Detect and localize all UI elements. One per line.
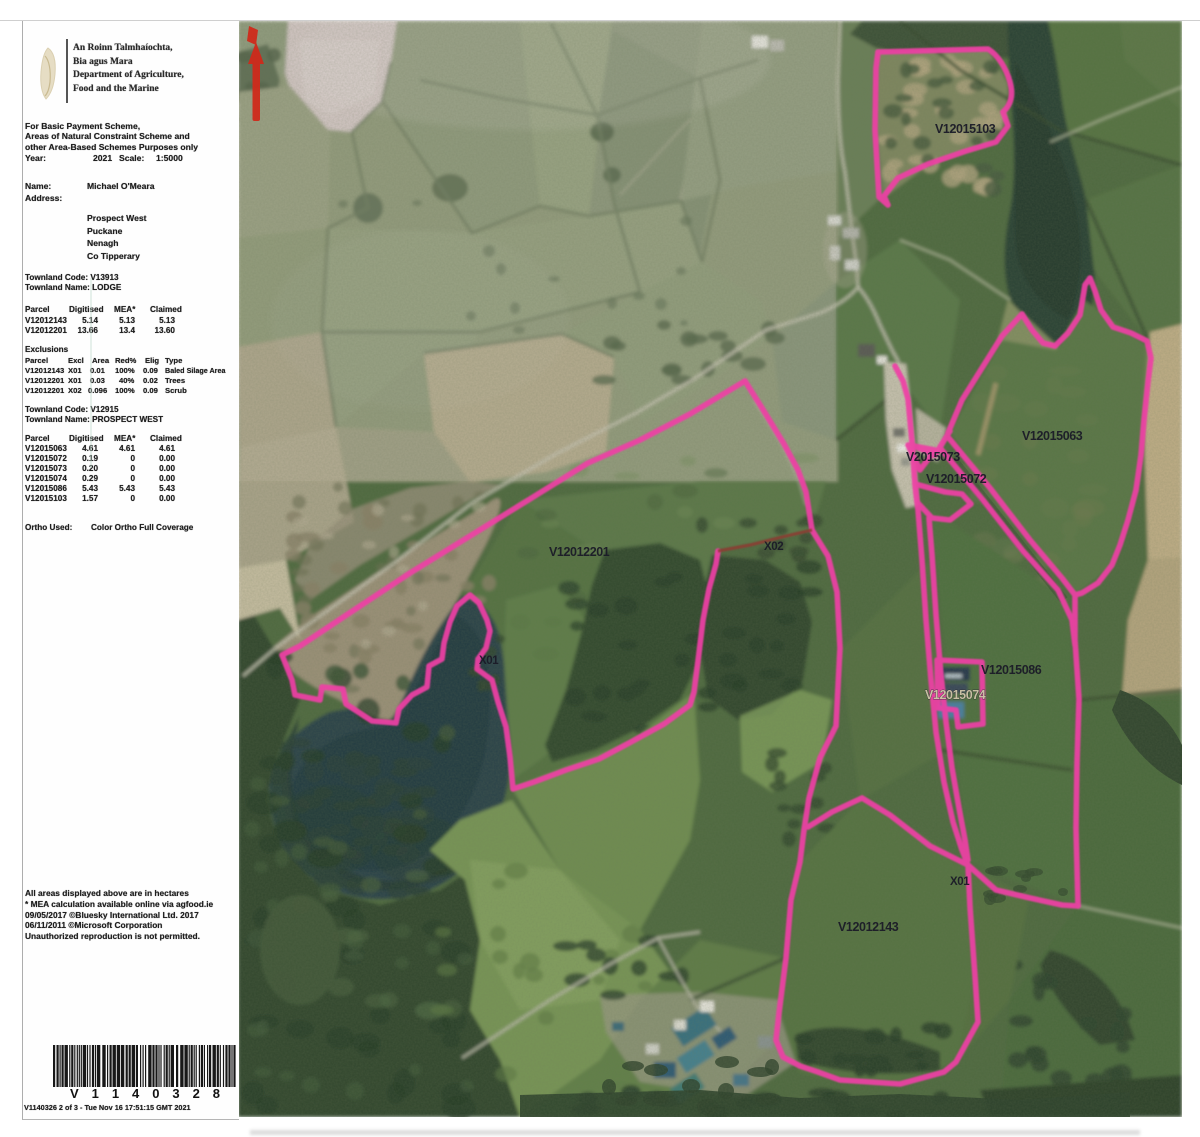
svg-text:V12015063: V12015063 — [1022, 429, 1083, 443]
svg-text:V12015072: V12015072 — [926, 472, 987, 486]
svg-text:X01: X01 — [479, 655, 499, 667]
svg-text:V12015074: V12015074 — [925, 688, 986, 702]
svg-text:V12012143: V12012143 — [838, 920, 899, 934]
svg-text:X01: X01 — [950, 876, 970, 888]
svg-text:V12015103: V12015103 — [935, 122, 996, 136]
svg-text:V12012201: V12012201 — [549, 545, 610, 559]
svg-text:X02: X02 — [764, 541, 783, 553]
svg-text:V12015086: V12015086 — [981, 663, 1042, 677]
svg-text:V2015073: V2015073 — [906, 450, 960, 464]
